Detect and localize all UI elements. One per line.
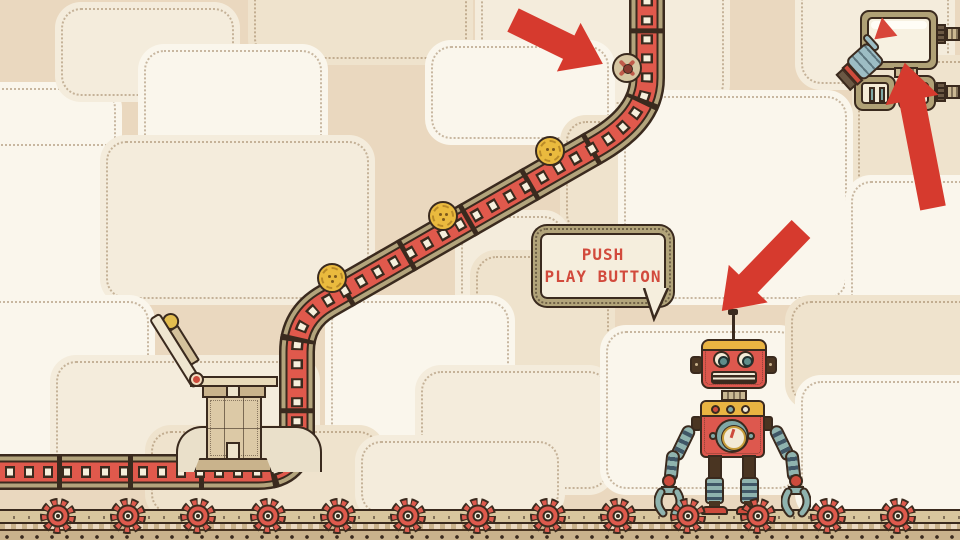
gauge-needle — [730, 429, 736, 438]
robot-thigh — [742, 455, 756, 479]
wheel-button-icon[interactable] — [612, 53, 642, 83]
bucket-base — [194, 458, 272, 472]
robot-antenna — [732, 314, 735, 341]
robot-foot — [736, 506, 763, 515]
robot-head — [701, 339, 767, 389]
robot-leg-spring — [705, 477, 724, 504]
pipe-connector — [936, 81, 960, 103]
speech-line-1: PUSH — [582, 245, 625, 265]
bucket[interactable] — [150, 310, 315, 475]
stop-icon — [913, 87, 924, 101]
pause-icon — [869, 87, 875, 102]
conveyor-track — [0, 0, 960, 540]
robot-antenna-tip — [728, 309, 738, 315]
game-scene: PUSH PLAY BUTTON — [0, 0, 960, 540]
robot-gauge — [715, 419, 749, 453]
speech-line-2: PLAY BUTTON — [545, 267, 662, 287]
robot-eye — [737, 351, 754, 368]
pipe-rib — [936, 82, 946, 102]
pause-icon — [879, 87, 885, 102]
coin-icon[interactable] — [535, 136, 565, 166]
bucket-hinge — [189, 372, 204, 387]
robot-cap — [703, 341, 765, 351]
pipe-tube — [946, 85, 960, 99]
robot-leg-spring — [740, 477, 759, 504]
robot-button-teal — [726, 405, 735, 414]
pipe-connector — [936, 23, 960, 45]
robot-foot — [701, 506, 728, 515]
pipe-tube — [946, 27, 960, 41]
pipe-rib — [936, 24, 946, 44]
play-device — [838, 5, 960, 117]
robot-button-red — [711, 405, 720, 414]
wheel-hub — [623, 64, 633, 74]
rail-base — [0, 529, 960, 540]
coin-icon[interactable] — [428, 201, 458, 231]
rail-bar — [0, 509, 960, 524]
robot-button-white — [741, 405, 750, 414]
robot-mouth — [711, 371, 757, 384]
gear-rail — [0, 495, 960, 540]
robot-character[interactable] — [650, 298, 815, 518]
robot-thigh — [708, 455, 722, 479]
robot-claw — [781, 486, 811, 518]
robot-claw — [654, 486, 684, 518]
stop-button[interactable] — [898, 75, 936, 111]
coin-icon[interactable] — [317, 263, 347, 293]
bucket-notch — [226, 442, 240, 460]
robot-eye — [713, 351, 730, 368]
